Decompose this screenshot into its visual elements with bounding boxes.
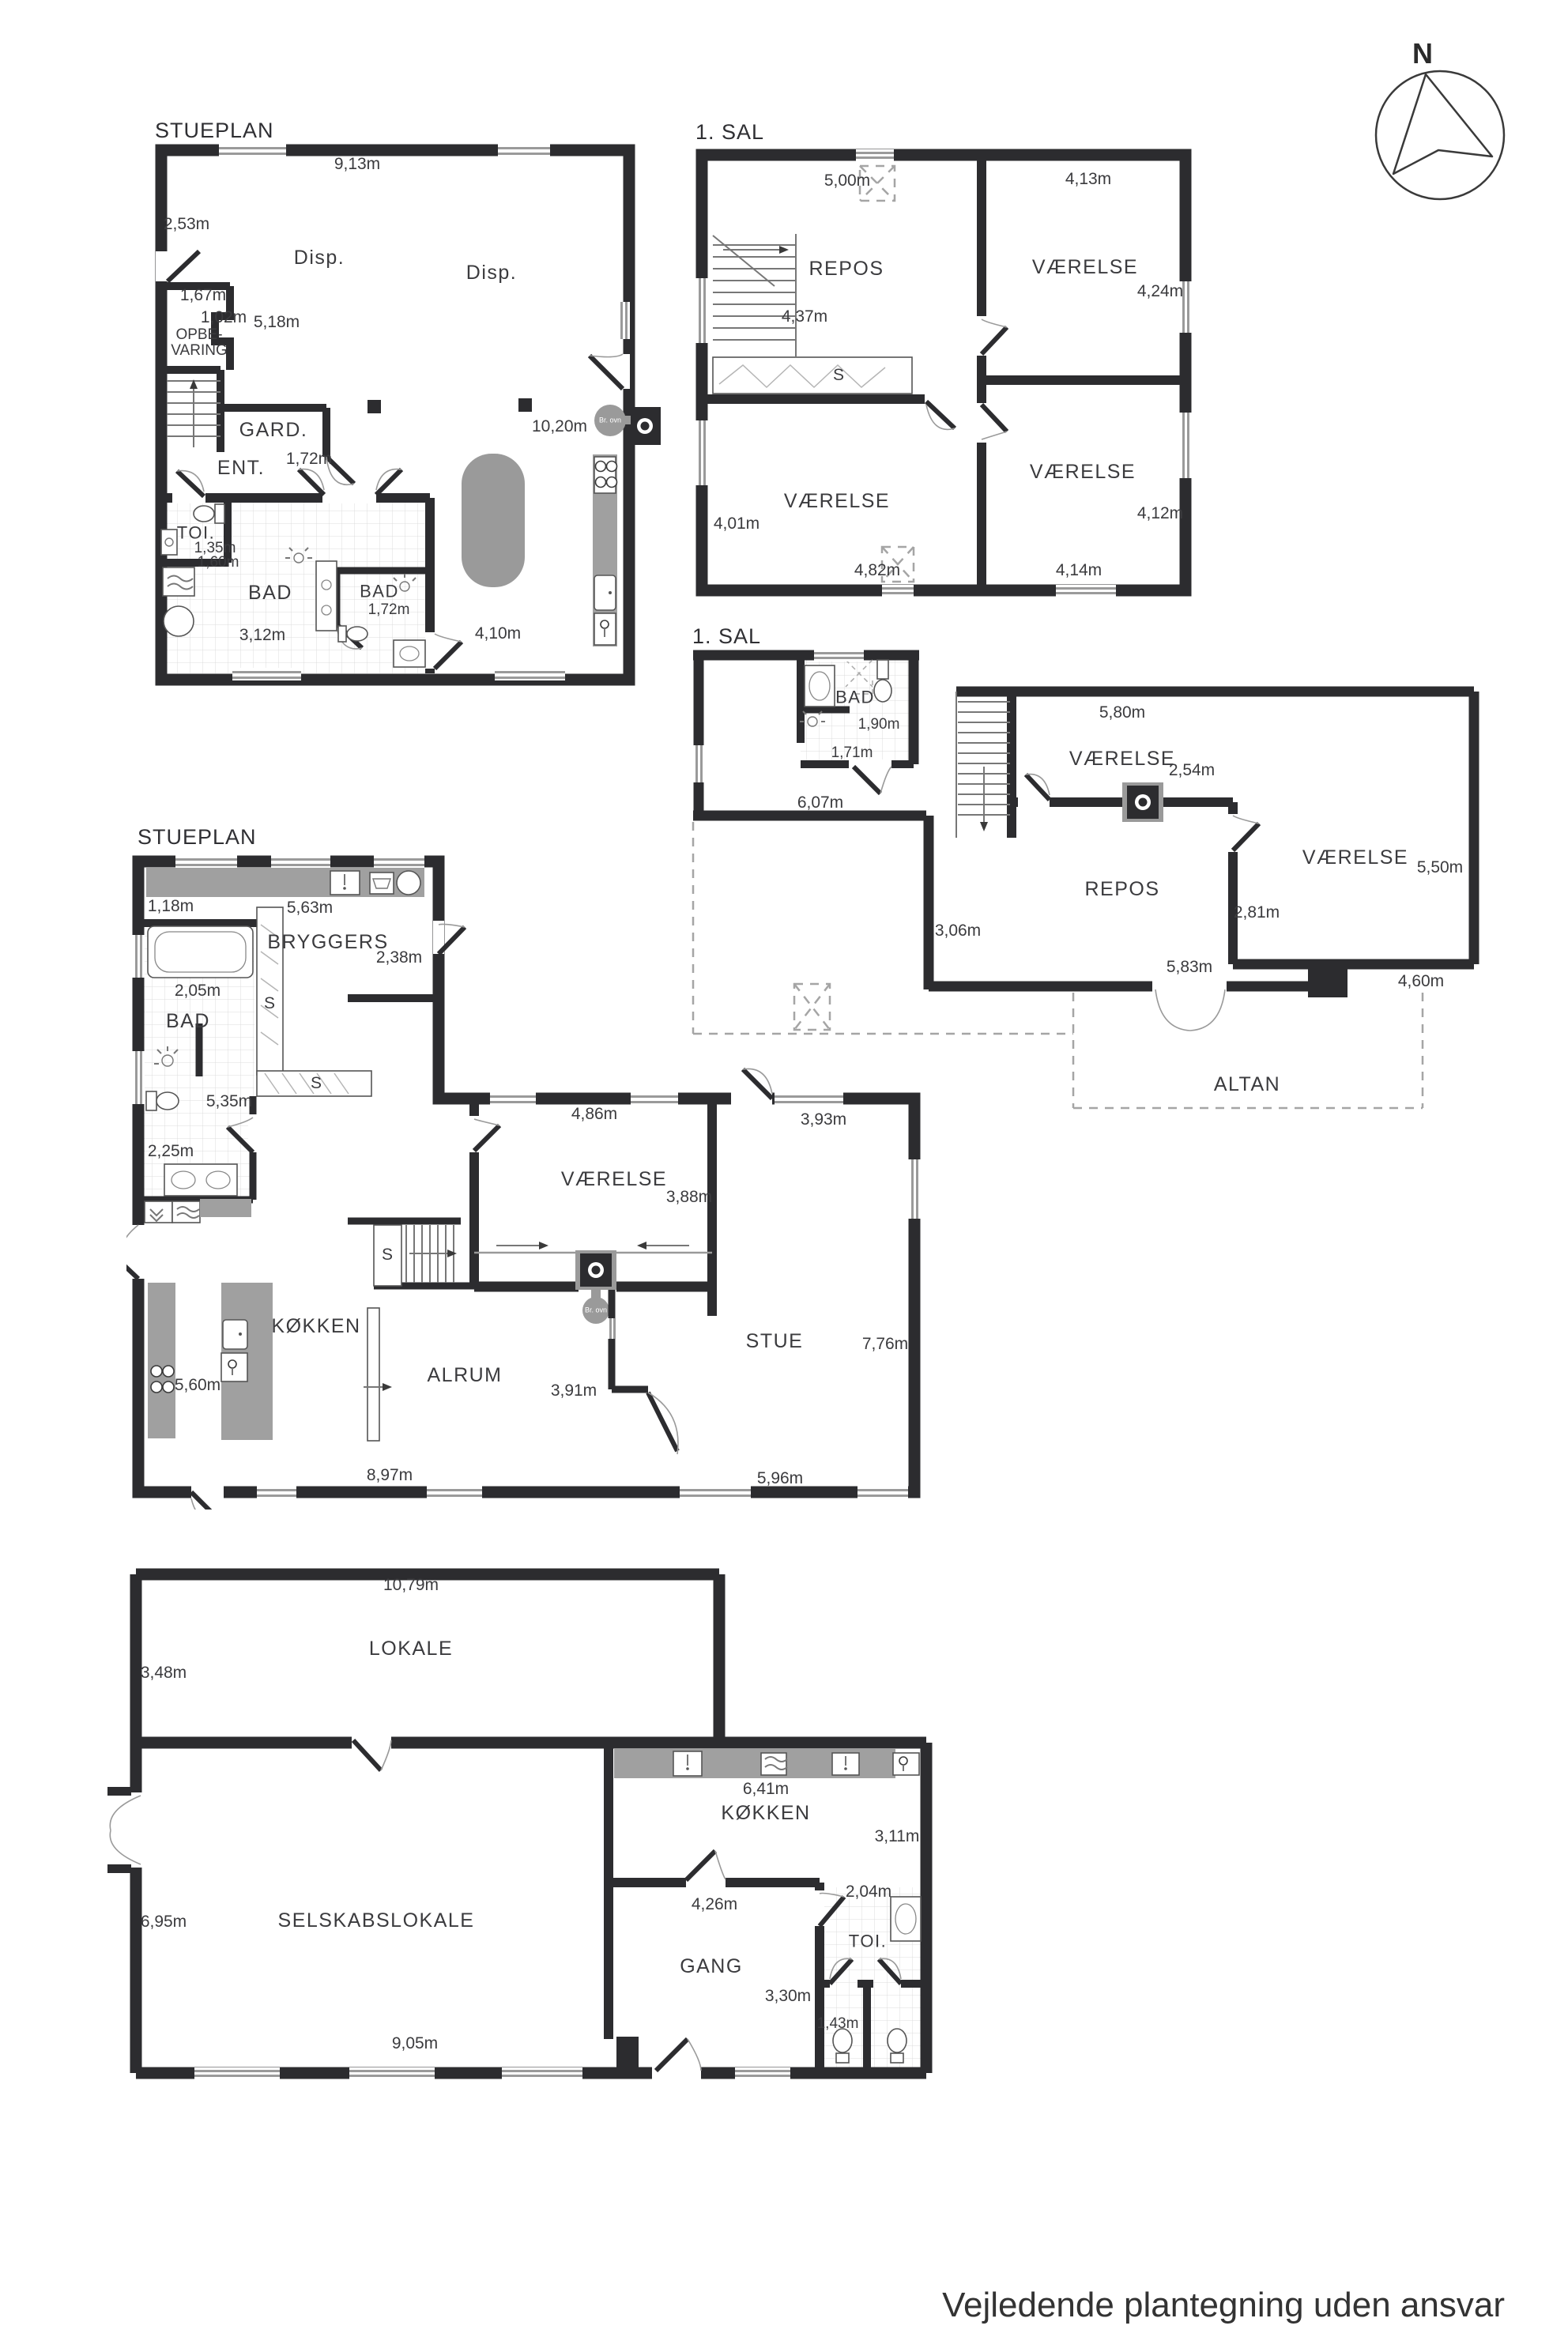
room-vaerelse-mid: VÆRELSE <box>1069 748 1175 769</box>
dim-3-93m: 3,93m <box>801 1111 846 1129</box>
dim-1-72m: 1,72m <box>286 450 332 468</box>
stairs <box>956 692 1010 838</box>
koekken-gang-wall <box>609 1851 820 1883</box>
dim-4-82m: 4,82m <box>854 562 900 579</box>
stairs <box>713 234 796 356</box>
dim-10-79m: 10,79m <box>383 1577 439 1594</box>
dim-1-43m: 1,43m <box>817 2016 859 2032</box>
chimney <box>1122 782 1163 822</box>
room-repos: REPOS <box>1084 879 1159 899</box>
room-toi: TOI. <box>849 1932 887 1950</box>
dim-1-67m: 1,67m <box>180 287 226 304</box>
dim-3-88m: 3,88m <box>666 1189 712 1206</box>
plan4-title: STUEPLAN <box>138 825 257 850</box>
room-gard: GARD. <box>239 420 308 440</box>
lokale-wall-door <box>352 1736 391 1770</box>
dim-6-07m: 6,07m <box>797 794 843 812</box>
koekken-counter <box>614 1749 919 1778</box>
dim-4-12m: 4,12m <box>1137 505 1183 522</box>
room-repos: REPOS <box>808 258 884 279</box>
dim-4-10m: 4,10m <box>475 625 521 643</box>
dim-7-76m: 7,76m <box>862 1336 908 1353</box>
plan3-title: 1. SAL <box>692 624 761 649</box>
kitchen-counter <box>593 454 617 646</box>
room-altan: ALTAN <box>1214 1074 1280 1095</box>
stove-label-br-ovn-2: Br. ovn <box>582 1307 610 1314</box>
utility-counter <box>146 868 424 897</box>
room-disp-2: Disp. <box>466 262 517 283</box>
room-vaerelse: VÆRELSE <box>561 1169 667 1189</box>
dim-4-37m: 4,37m <box>782 308 827 326</box>
dim-4-13m: 4,13m <box>1065 171 1111 188</box>
dim-2-05m: 2,05m <box>175 982 220 1000</box>
room-disp-1: Disp. <box>294 247 345 268</box>
room-alrum: ALRUM <box>427 1365 502 1385</box>
dim-8-97m: 8,97m <box>367 1467 413 1484</box>
dim-3-30m: 3,30m <box>765 1988 811 2005</box>
room-stue: STUE <box>746 1331 804 1351</box>
room-vaerelse-right: VÆRELSE <box>1302 847 1408 868</box>
dim-5-96m: 5,96m <box>757 1470 803 1487</box>
dim-3-06m: 3,06m <box>935 922 981 940</box>
room-gang: GANG <box>680 1956 743 1977</box>
stove-label-br-ovn: Br. ovn <box>596 417 624 424</box>
door-right-wall <box>590 354 630 389</box>
dim-2-25m: 2,25m <box>148 1143 194 1160</box>
north-arrow-icon <box>1393 74 1492 174</box>
dim-3-91m: 3,91m <box>551 1382 597 1400</box>
dim-9-13m: 9,13m <box>334 156 380 173</box>
dim-1-60m: 1,60m <box>198 555 239 571</box>
plan1-title: STUEPLAN <box>155 119 274 143</box>
dim-2-53m: 2,53m <box>164 216 209 233</box>
dim-1-18m: 1,18m <box>148 898 194 915</box>
plan-1sal-a-drawing <box>688 119 1209 624</box>
compass-drawing <box>1344 24 1541 221</box>
room-selskabslokale: SELSKABSLOKALE <box>278 1910 475 1931</box>
plan-selskabslokale-drawing <box>103 1565 940 2118</box>
dim-5-35m: 5,35m <box>206 1093 252 1110</box>
disclaimer-text: Vejledende plantegning uden ansvar <box>942 2286 1505 2325</box>
dim-6-95m: 6,95m <box>141 1913 187 1931</box>
floorplan-sheet: STUEPLAN 9,13m 2,53m Disp. Disp. 1,67m 1… <box>0 0 1568 2352</box>
dim-4-14m: 4,14m <box>1056 562 1102 579</box>
room-opbevaring-line2: VARING <box>171 343 227 359</box>
room-bryggers: BRYGGERS <box>267 932 388 952</box>
dim-9-05m: 9,05m <box>392 2035 438 2052</box>
dim-3-48m: 3,48m <box>141 1664 187 1682</box>
room-bad-2: BAD <box>360 582 399 600</box>
room-vaerelse-br: VÆRELSE <box>1030 462 1136 482</box>
dim-4-60m: 4,60m <box>1398 973 1444 990</box>
kitchen <box>148 1283 392 1441</box>
room-bad: BAD <box>166 1011 210 1031</box>
closet-s: S <box>833 367 844 384</box>
dim-5-00m: 5,00m <box>824 172 870 190</box>
dim-3-12m: 3,12m <box>239 627 285 644</box>
plan-stueplan-2: STUEPLAN 1,18m 5,63m BRYGGERS 2,38m 2,05… <box>126 822 933 1510</box>
dim-1-72m-b: 1,72m <box>368 602 410 618</box>
stue-walls <box>607 1290 678 1454</box>
closet-s-vertical: S <box>264 995 275 1012</box>
dim-5-50m: 5,50m <box>1417 859 1463 876</box>
dim-5-80m: 5,80m <box>1099 704 1145 722</box>
room-ent: ENT. <box>217 458 265 478</box>
dim-2-54m: 2,54m <box>1169 762 1215 779</box>
dim-2-38m: 2,38m <box>376 949 422 967</box>
dim-5-63m: 5,63m <box>287 899 333 917</box>
plan-stueplan-1: STUEPLAN 9,13m 2,53m Disp. Disp. 1,67m 1… <box>126 119 672 695</box>
selskab-gang-divider <box>609 1743 701 2079</box>
dim-4-01m: 4,01m <box>714 515 759 533</box>
room-vaerelse-tr: VÆRELSE <box>1032 257 1138 277</box>
dim-1-90m: 1,90m <box>858 717 900 733</box>
dim-6-41m: 6,41m <box>743 1781 789 1798</box>
room-koekken: KØKKEN <box>721 1803 810 1823</box>
dim-4-26m: 4,26m <box>692 1896 737 1913</box>
dim-3-11m: 3,11m <box>875 1828 920 1845</box>
entry-doors-left <box>107 1787 142 1873</box>
dim-4-86m: 4,86m <box>571 1106 617 1123</box>
plan2-title: 1. SAL <box>695 120 764 145</box>
dim-1-71m: 1,71m <box>831 745 873 761</box>
room-vaerelse-bl: VÆRELSE <box>784 491 890 511</box>
dim-5-60m: 5,60m <box>175 1377 220 1394</box>
dim-10-20m: 10,20m <box>532 418 587 435</box>
room-lokale: LOKALE <box>369 1638 453 1659</box>
hall-stairs <box>348 1104 499 1286</box>
compass: N <box>1344 24 1541 221</box>
room-bad: BAD <box>835 688 875 706</box>
room-opbevaring-line1: OPBE- <box>175 327 222 343</box>
dim-2-04m: 2,04m <box>846 1883 891 1901</box>
dim-5-83m: 5,83m <box>1167 959 1212 976</box>
compass-north-label: N <box>1412 39 1433 69</box>
plan-1sal-a: 1. SAL 5,00m 4,13m REPOS VÆRELSE 4,24m 4… <box>688 119 1209 624</box>
dim-4-24m: 4,24m <box>1137 283 1183 300</box>
dim-2-81m: 2,81m <box>1234 904 1280 922</box>
dim-1-02m: 1,02m <box>201 309 247 326</box>
room-bad-1: BAD <box>248 582 292 603</box>
closet-s-horizontal: S <box>311 1075 322 1092</box>
closet <box>713 357 912 394</box>
room-koekken: KØKKEN <box>271 1316 360 1336</box>
plan-stueplan-2-drawing <box>126 822 933 1510</box>
dim-5-18m: 5,18m <box>254 314 300 331</box>
plan-selskabslokale: 10,79m LOKALE 3,48m 6,41m KØKKEN 3,11m 4… <box>103 1565 940 2118</box>
stairs <box>167 379 220 447</box>
closet-s-stair: S <box>382 1246 393 1264</box>
